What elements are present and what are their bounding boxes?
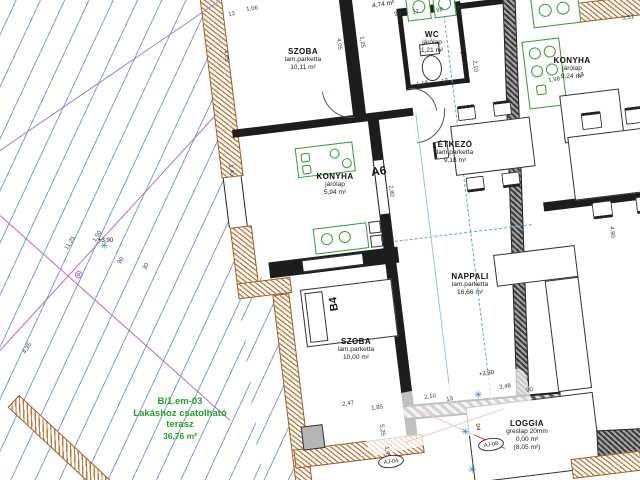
drain-star-symbol: ✳ [100, 242, 108, 252]
room-area: 1,21 m² [372, 47, 492, 55]
room-area: 16,66 m² [410, 289, 530, 297]
room-area: 9,24 m² [512, 73, 632, 81]
dimension-label: 4,05 [222, 50, 229, 62]
dimension-label: 2,10 [471, 60, 478, 72]
plan-mark: 4,74 m² [372, 0, 395, 10]
element-tag: AJ-04 [377, 453, 405, 469]
dimension-label: 17 [412, 9, 419, 16]
dimension-label: 15 [577, 72, 584, 79]
plan-mark: A6 [370, 163, 387, 179]
room-material: greslap 20mm [467, 428, 587, 436]
dimension-label: 90 [526, 387, 533, 394]
dimension-label: 2,47 [342, 400, 354, 408]
dimension-label: 2,80 [387, 185, 394, 197]
room-name: WC [372, 30, 492, 39]
room-label-szoba2: SZOBAlam.parketta10,00 m² [296, 337, 416, 362]
terrace-note: B/1.em-03 Lakáshoz csatolható terasz 36,… [95, 396, 265, 442]
room-name: SZOBA [296, 337, 416, 346]
terrace-note-area: 36,76 m² [95, 430, 265, 442]
room-name: KONYHA [512, 56, 632, 65]
room-name: ÉTKEZŐ [395, 140, 515, 149]
room-label-etkezo: ÉTKEZŐlam.parketta9,18 m² [395, 140, 515, 165]
plan-mark: D4 [474, 423, 481, 431]
room-area: 9,18 m² [395, 157, 515, 165]
room-label-szoba1: SZOBAlam.parketta10,11 m² [243, 47, 363, 72]
dimension-label: 1,40 [227, 164, 234, 176]
terrace-note-text1: Lakáshoz csatolható [95, 408, 265, 419]
setting-out-line [0, 0, 220, 151]
dimension-label: 5,25 [378, 424, 385, 436]
terrace-note-id: B/1.em-03 [95, 396, 265, 408]
setting-out-line [0, 116, 215, 351]
room-material: lam.parketta [243, 56, 363, 64]
dimension-label: 3,51 [622, 14, 634, 22]
dimension-label: 30 [142, 262, 151, 271]
room-material: járólap [275, 181, 395, 189]
dimension-label: 1,25 [358, 36, 365, 48]
terrace-note-text2: terasz [95, 419, 265, 430]
dimension-label: 4,05 [335, 38, 342, 50]
dimension-label: 11,25 [64, 236, 77, 252]
room-material: lam.parketta [410, 281, 530, 289]
room-material: lam.parketta [296, 346, 416, 354]
room-name: NAPPALI [410, 272, 530, 281]
drain-star-symbol: ✳ [468, 466, 476, 476]
dimension-label: 13 [446, 396, 453, 403]
plan-mark: T8 [460, 52, 468, 59]
dimension-label: 1,06 [246, 5, 258, 13]
dimension-label: 98 [436, 7, 443, 14]
room-area: 10,11 m² [243, 64, 363, 72]
room-label-konyha2: KONYHAjárólap9,24 m² [512, 56, 632, 81]
dimension-label: 1,98 [548, 76, 560, 84]
dimension-label: 13 [441, 78, 448, 85]
room-material: járólap [372, 39, 492, 47]
annotation-layer: ⊗ B/1.em-03 Lakáshoz csatolható terasz 3… [0, 0, 640, 480]
setting-out-line [0, 215, 230, 421]
room-area: 10,00 m² [296, 354, 416, 362]
dimension-label: 13 [228, 11, 235, 18]
room-label-nappali: NAPPALIlam.parketta16,66 m² [410, 272, 530, 297]
room-label-wc: WCjárólap1,21 m² [372, 30, 492, 55]
dimension-label: 10 [456, 5, 463, 12]
room-name: LOGGIA [467, 419, 587, 428]
room-material: járólap [512, 65, 632, 73]
plan-mark: B4 [327, 296, 341, 311]
dimension-label: 1,18 [416, 80, 428, 88]
room-material: lam.parketta [395, 149, 515, 157]
dimension-label: 4,90 [608, 226, 615, 238]
room-name: SZOBA [243, 47, 363, 56]
drain-star-symbol: ✳ [474, 391, 482, 401]
room-area: 5,94 m² [275, 189, 395, 197]
floor-plan: ⊗ B/1.em-03 Lakáshoz csatolható terasz 3… [0, 0, 640, 480]
dimension-label: 90 [394, 11, 401, 18]
dimension-label: 4,35 [22, 342, 33, 355]
dimension-label: 90 [117, 256, 126, 265]
drain-star-symbol: ✳ [461, 428, 469, 438]
drain-symbol: ⊗ [74, 270, 83, 281]
